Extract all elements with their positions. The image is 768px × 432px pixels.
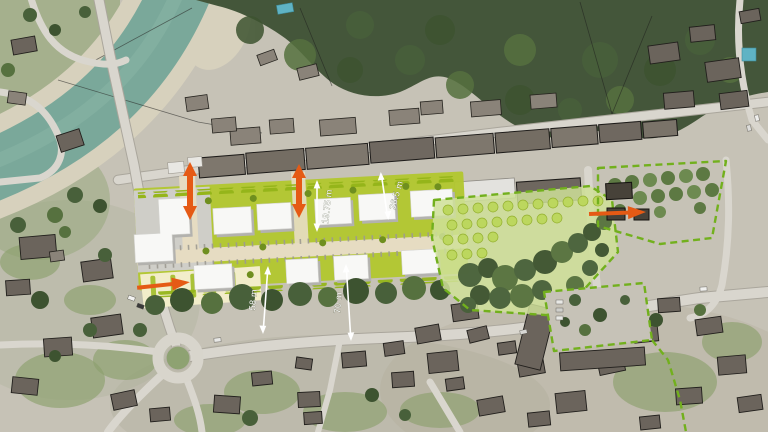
aerial-masterplan-map: 19.75 m 26.5 m 58 m 70 m (0, 0, 768, 432)
map-canvas: 19.75 m 26.5 m 58 m 70 m (0, 0, 768, 432)
dimension-label: 58 m (247, 289, 259, 311)
dimension-label: 70 m (332, 292, 344, 314)
swimming-pool (742, 48, 756, 61)
